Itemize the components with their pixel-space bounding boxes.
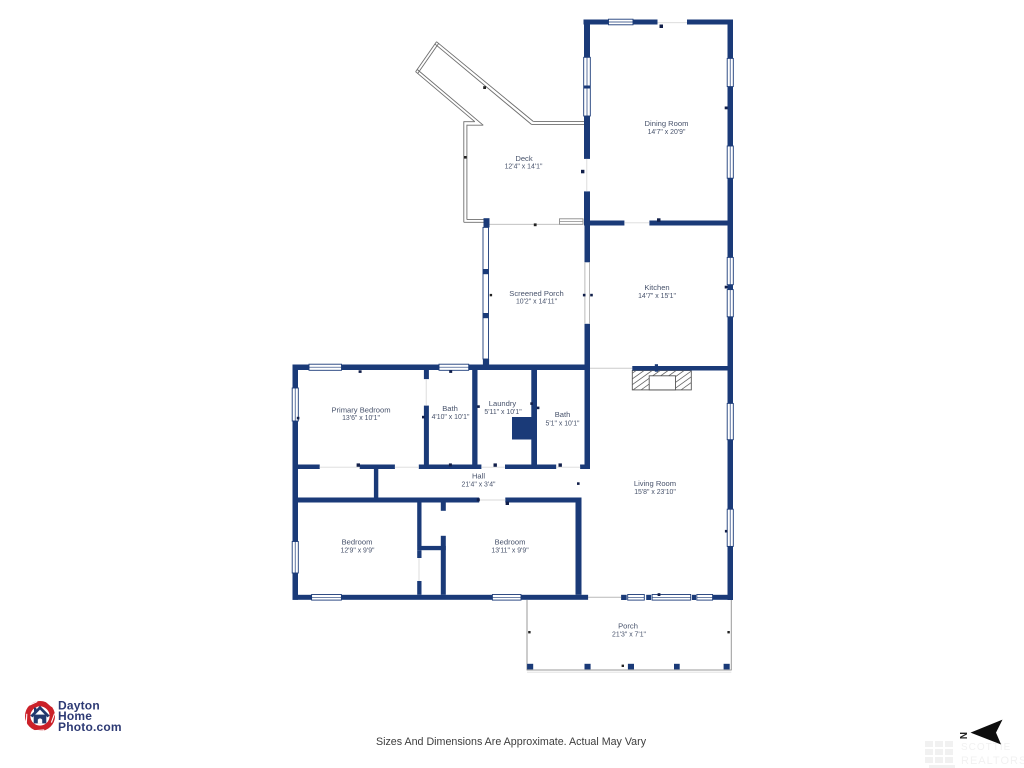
svg-text:15'8" x 23'10": 15'8" x 23'10" [634,489,676,496]
svg-text:SCOTTIE: SCOTTIE [961,742,1011,753]
svg-text:14'7" x 15'1": 14'7" x 15'1" [638,293,676,300]
svg-text:5'1" x 10'1": 5'1" x 10'1" [546,420,581,427]
svg-text:Primary Bedroom: Primary Bedroom [331,405,390,414]
svg-text:12'4" x 14'1": 12'4" x 14'1" [505,164,543,171]
svg-text:Bath: Bath [442,404,458,413]
svg-text:12'9" x 9'9": 12'9" x 9'9" [341,548,376,555]
svg-text:4'10" x 10'1": 4'10" x 10'1" [432,414,470,421]
svg-text:Dining Room: Dining Room [645,119,689,128]
svg-text:14'7" x 20'9": 14'7" x 20'9" [648,129,686,136]
svg-text:Photo.com: Photo.com [58,720,122,734]
svg-text:Kitchen: Kitchen [644,283,669,292]
svg-text:Living Room: Living Room [634,479,676,488]
svg-text:21'3" x 7'1": 21'3" x 7'1" [612,631,647,638]
svg-text:Screened Porch: Screened Porch [509,289,563,298]
svg-text:Bedroom: Bedroom [342,537,373,546]
svg-text:REALTORS: REALTORS [961,755,1024,767]
svg-text:13'6" x 10'1": 13'6" x 10'1" [342,415,380,422]
svg-text:21'4" x 3'4": 21'4" x 3'4" [462,481,497,488]
svg-text:10'2" x 14'11": 10'2" x 14'11" [516,298,558,305]
svg-text:Sizes And Dimensions Are Appro: Sizes And Dimensions Are Approximate. Ac… [376,736,647,748]
svg-text:Hall: Hall [472,471,485,480]
svg-text:13'11" x 9'9": 13'11" x 9'9" [491,548,529,555]
svg-text:Bath: Bath [555,410,571,419]
svg-text:5'11" x 10'1": 5'11" x 10'1" [484,409,522,416]
svg-text:Laundry: Laundry [489,399,517,408]
svg-text:Porch: Porch [618,621,638,630]
svg-text:Deck: Deck [515,154,533,163]
svg-text:Bedroom: Bedroom [495,537,526,546]
svg-text:N: N [957,732,968,739]
